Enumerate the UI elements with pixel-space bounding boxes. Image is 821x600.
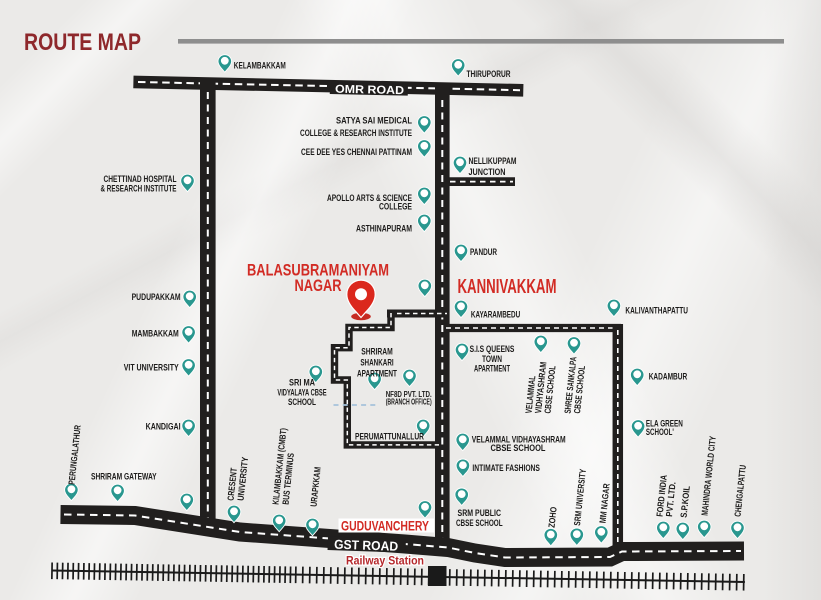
svg-text:INTIMATE FASHIONS: INTIMATE FASHIONS [472,463,540,473]
svg-text:NELLIKUPPAM: NELLIKUPPAM [469,156,517,166]
svg-text:CBSE SCHOOL: CBSE SCHOOL [456,518,503,528]
svg-text:SATYA SAI MEDICAL: SATYA SAI MEDICAL [336,116,412,126]
svg-text:NAGAR: NAGAR [295,277,342,295]
svg-text:COLLEGE: COLLEGE [379,202,412,212]
svg-text:CHENGALPATTU: CHENGALPATTU [733,464,748,517]
svg-text:ROUTE MAP: ROUTE MAP [24,29,141,56]
svg-text:PUDUPAKKAM: PUDUPAKKAM [132,292,181,302]
svg-text:CHETTINAD HOSPITAL: CHETTINAD HOSPITAL [104,174,177,184]
svg-text:APARTMENT: APARTMENT [474,364,510,374]
svg-text:ASTHINAPURAM: ASTHINAPURAM [356,224,412,234]
svg-text:GST ROAD: GST ROAD [334,537,398,554]
svg-text:SHRIRAM GATEWAY: SHRIRAM GATEWAY [91,472,157,482]
svg-text:CEE DEE YES CHENNAI PATTINAM: CEE DEE YES CHENNAI PATTINAM [301,147,412,157]
svg-text:MAHINDRA WORLD CITY: MAHINDRA WORLD CITY [700,436,718,517]
svg-text:MM NAGAR: MM NAGAR [598,482,612,523]
svg-text:THIRUPORUR: THIRUPORUR [467,69,511,79]
svg-text:KALIVANTHAPATTU: KALIVANTHAPATTU [625,306,688,316]
svg-text:VIT UNIVERSITY: VIT UNIVERSITY [124,363,179,373]
svg-text:VIDYALAYA CBSE: VIDYALAYA CBSE [277,387,326,397]
svg-text:S.I.S QUEENS: S.I.S QUEENS [470,344,515,354]
svg-text:SRM PUBLIC: SRM PUBLIC [458,508,502,518]
svg-text:KAYARAMBEDU: KAYARAMBEDU [471,310,520,320]
svg-text:SRM UNIVERSITY: SRM UNIVERSITY [572,468,588,526]
svg-text:S.P.KOIL: S.P.KOIL [679,485,692,518]
svg-text:URAPKKAM: URAPKKAM [309,466,323,507]
svg-text:PERUNGALATHUR: PERUNGALATHUR [67,424,83,485]
svg-text:JUNCTION: JUNCTION [469,167,506,177]
svg-text:KELAMBAKKAM: KELAMBAKKAM [234,60,286,70]
svg-text:GUDUVANCHERY: GUDUVANCHERY [341,519,429,534]
svg-text:KANNIVAKKAM: KANNIVAKKAM [458,275,557,298]
svg-text:PERUMATTUNALLUR: PERUMATTUNALLUR [355,432,424,442]
svg-text:SHANKARI: SHANKARI [360,358,393,368]
svg-text:OMR ROAD: OMR ROAD [335,84,404,97]
svg-text:ZOHO: ZOHO [547,506,559,528]
svg-text:SCHOOL': SCHOOL' [646,427,674,437]
svg-text:APARTMENT: APARTMENT [357,368,397,378]
svg-text:KANDIGAI: KANDIGAI [146,422,181,432]
svg-text:SCHOOL: SCHOOL [288,397,316,407]
svg-text:PANDUR: PANDUR [470,247,497,257]
svg-text:TOWN: TOWN [482,354,502,364]
svg-text:SHRIRAM: SHRIRAM [361,347,393,357]
svg-text:KADAMBUR: KADAMBUR [649,372,688,382]
svg-text:UNIVERSITY: UNIVERSITY [236,456,251,501]
svg-text:SRI MA: SRI MA [289,377,315,387]
svg-text:CBSE SCHOOL: CBSE SCHOOL [491,443,546,453]
svg-text:(BRANCH OFFICE): (BRANCH OFFICE) [386,398,432,407]
svg-text:Railway Station: Railway Station [346,556,424,568]
svg-text:& RESEARCH INSTITUTE: & RESEARCH INSTITUTE [101,184,177,194]
svg-text:MAMBAKKAM: MAMBAKKAM [132,329,179,339]
svg-text:COLLEGE & RESEARCH INSTITUTE: COLLEGE & RESEARCH INSTITUTE [300,128,412,138]
